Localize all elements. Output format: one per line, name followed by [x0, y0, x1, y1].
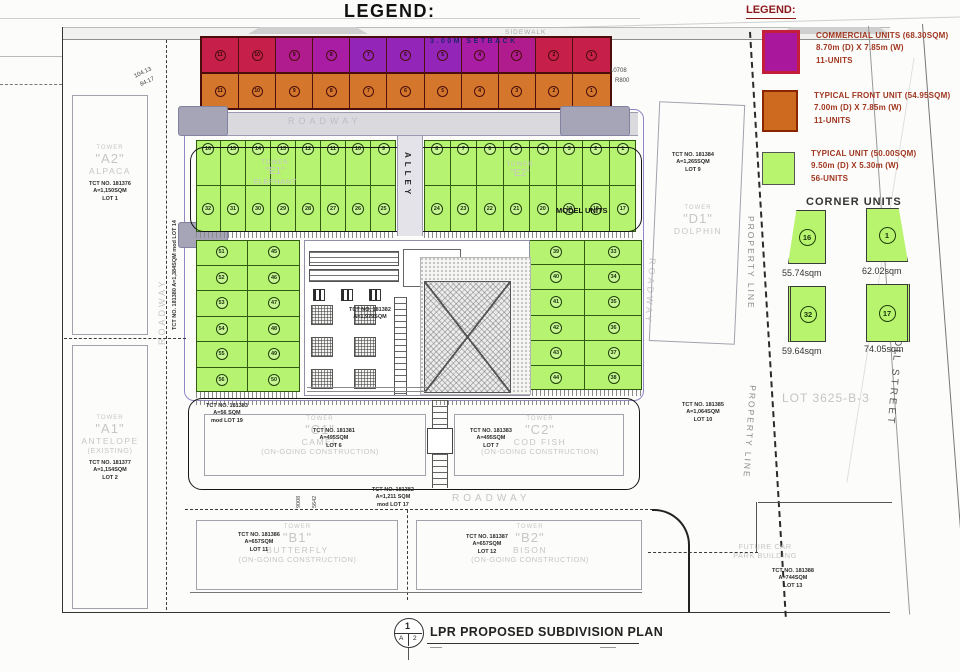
- b-block-bottom-line: [190, 592, 642, 593]
- strip-west-outer-col: 515253545556: [196, 240, 248, 392]
- unit-number: 2: [548, 86, 559, 97]
- tct-lot12: TCT NO. 181387 A=657SQM LOT 12: [466, 534, 508, 556]
- legend-text: TYPICAL FRONT UNIT (54.95SQM) 7.00m (D) …: [814, 90, 950, 127]
- central-walkway: [394, 297, 407, 395]
- tower-e1-label: TOWER "E1" ELEPHANT: [240, 160, 310, 186]
- commercial-unit-cell: 9: [276, 38, 313, 72]
- unit-number: 36: [608, 322, 620, 334]
- tower-name: ANTELOPE: [72, 436, 148, 446]
- tower-name: BUTTERFLY: [210, 545, 385, 555]
- tower-code: "A1": [72, 421, 148, 436]
- cabana: [369, 289, 381, 301]
- front-unit-cell: 4: [462, 74, 499, 108]
- tct-lot10: TCT NO. 181385 A=1,064SQM LOT 10: [682, 402, 724, 424]
- front-unit-cell: 3: [499, 74, 536, 108]
- unit-number: 41: [550, 296, 562, 308]
- carpark-line: PARK BUILDING: [720, 551, 810, 560]
- unit-number: 54: [216, 323, 228, 335]
- model-units-label: MODEL UNITS: [556, 207, 608, 216]
- tct-line: TCT NO. 181381: [313, 428, 355, 435]
- unit-number: 39: [550, 246, 562, 258]
- unit-number: 3: [511, 50, 522, 61]
- legend-text: COMMERCIAL UNITS (68.30SQM) 8.70m (D) X …: [816, 30, 948, 67]
- commercial-unit-cell: 6: [387, 38, 424, 72]
- legend-line: COMMERCIAL UNITS (68.30SQM): [816, 30, 948, 42]
- tct-line: A=56 SQM: [206, 410, 248, 417]
- carpark-lot-line: [758, 502, 892, 503]
- tct-lot17: TCT NO. 181382 A=1,211 SQM mod LOT 17: [372, 487, 414, 509]
- tct-line: LOT 2: [72, 475, 148, 482]
- tct-line: LOT 11: [238, 547, 280, 554]
- tct-line: TCT NO. 181383: [470, 428, 512, 435]
- sheet-line: [0, 18, 640, 19]
- corner-units-heading: CORNER UNITS: [806, 196, 902, 209]
- tower-d1-label: TOWER "D1" DOLPHIN: [658, 205, 738, 236]
- typical-unit-cell: 41: [528, 290, 584, 315]
- tct-line: TCT NO. 181382: [372, 487, 414, 494]
- sidewalk-hatch: [528, 390, 642, 396]
- bubble-tail: [408, 648, 409, 660]
- tct-lot11: TCT NO. 181386 A=657SQM LOT 11: [238, 532, 280, 554]
- tct-line: TCT NO. 181382: [349, 307, 391, 314]
- legend-line: TYPICAL FRONT UNIT (54.95SQM): [814, 90, 950, 102]
- unit-number: 45: [268, 246, 280, 258]
- tct-line: A=657SQM: [238, 539, 280, 546]
- sidewalk-hatch: [196, 400, 632, 405]
- tct-line: A=1,154SQM: [72, 467, 148, 474]
- unit-number: 7: [363, 86, 374, 97]
- carpark-line: FUTURE CAR: [720, 542, 810, 551]
- plan-title: LPR PROPOSED SUBDIVISION PLAN: [430, 625, 663, 639]
- typical-unit-cell: 51: [196, 240, 247, 266]
- legend-swatch: [762, 90, 798, 132]
- commercial-unit-cell: 10: [239, 38, 276, 72]
- tct-lot6: TCT NO. 181381 A=495SQM LOT 6: [313, 428, 355, 450]
- unit-number: 11: [215, 50, 226, 61]
- unit-number: 9: [289, 86, 300, 97]
- b-block-top-line: [185, 509, 653, 510]
- strip-west-inner-col: 454647484950: [248, 240, 300, 392]
- road-centerline-west: [166, 40, 167, 610]
- front-unit-cell: 1: [573, 74, 610, 108]
- margin-line: [0, 56, 62, 57]
- commercial-unit-cell: 2: [536, 38, 573, 72]
- lot3625-label: LOT 3625-B-3: [782, 392, 870, 406]
- lap-pool: [309, 269, 399, 282]
- unit-number: 37: [608, 347, 620, 359]
- corner-unit-17-area: 74.05sqm: [864, 344, 904, 354]
- tct-line: TCT NO. 181386: [238, 532, 280, 539]
- corner-unit-32-area: 59.64sqm: [782, 346, 822, 356]
- corner-unit-32: 32: [788, 286, 826, 342]
- unit-number: 10: [252, 50, 263, 61]
- typical-unit-cell: 50: [248, 368, 300, 393]
- typical-unit-cell: 54: [196, 317, 247, 343]
- front-unit-cell: 5: [425, 74, 462, 108]
- alley-label: ALLEY: [403, 152, 412, 228]
- tower-code: "E2": [485, 168, 555, 179]
- dim-10708: 10708: [610, 68, 627, 75]
- unit-number: 10: [252, 86, 263, 97]
- tct-lot14-label: TCT NO. 181380 A=1,384SQM mod LOT 14: [172, 220, 178, 330]
- front-unit-row: 11 10 9 8 7 6 5 4 3 2 1: [200, 74, 612, 110]
- unit-number: 8: [326, 50, 337, 61]
- cabana: [313, 289, 325, 301]
- commercial-row: 11 10 9 8 7 6 5 4 3 2 1: [200, 36, 612, 74]
- bubble-divider-v: [408, 633, 409, 646]
- strip-east-outer-col: 333435363738: [585, 240, 642, 390]
- subdivision-plan-sheet: LEGEND: SIDEWALK 11 10 9 8 7 6 5 4 3 2: [0, 0, 960, 672]
- tct-line: A=657SQM: [466, 541, 508, 548]
- typical-unit-cell: 35: [585, 290, 642, 315]
- tct-line: LOT 1: [72, 196, 148, 203]
- corner-unit-1: 1: [866, 208, 908, 262]
- typical-unit-cell: 47: [248, 291, 300, 317]
- tree-planter: [311, 369, 333, 389]
- unit-number: 38: [608, 372, 620, 384]
- unit-number: 53: [216, 297, 228, 309]
- unit-number: 7: [363, 50, 374, 61]
- tct-line: A=1,150SQM: [72, 188, 148, 195]
- clubhouse-roof: [424, 281, 511, 393]
- traffic-island: [178, 106, 228, 136]
- dim-84: 84.17: [139, 76, 156, 89]
- unit-number: 55: [216, 348, 228, 360]
- tower-a2-building: [72, 95, 148, 335]
- unit-number: 4: [474, 50, 485, 61]
- unit-number: 43: [550, 347, 562, 359]
- tower-code: "E1": [240, 166, 310, 177]
- tct-lot13: TCT NO. 181388 A=744SQM LOT 13: [772, 568, 814, 590]
- unit-number: 6: [400, 86, 411, 97]
- tct-line: A=1,265SQM: [672, 159, 714, 166]
- unit-number: 1: [586, 50, 597, 61]
- typical-unit-cell: 39: [528, 240, 584, 265]
- tct-line: LOT 12: [466, 549, 508, 556]
- front-unit-cell: 8: [313, 74, 350, 108]
- legend-swatch: [762, 30, 800, 74]
- tree-planter: [354, 369, 376, 389]
- amenity-tct-text: TCT NO. 181382 A=1,979SQM: [349, 307, 391, 322]
- legend-heading: LEGEND:: [746, 4, 796, 19]
- scale-tick: [600, 647, 616, 648]
- front-unit-cell: 9: [276, 74, 313, 108]
- tct-line: mod LOT 19: [206, 418, 248, 425]
- tower-status: (ON-GOING CONSTRUCTION): [210, 555, 385, 564]
- commercial-unit-cell: 11: [202, 38, 239, 72]
- sidewalk-hatch: [196, 232, 396, 238]
- unit-number: 51: [216, 246, 228, 258]
- tower-status: (EXISTING): [72, 446, 148, 455]
- dim-9008: 9008: [296, 496, 302, 508]
- unit-number: 42: [550, 322, 562, 334]
- typical-unit-cell: 38: [585, 366, 642, 390]
- typical-unit-cell: 55: [196, 342, 247, 368]
- unit-number: 3: [511, 86, 522, 97]
- tct-line: A=1,064SQM: [682, 409, 724, 416]
- setback-label: 3.00M SETBACK: [430, 38, 518, 46]
- tower-code: "D1": [658, 211, 738, 226]
- property-line-label-legend: PROPERTY LINE: [745, 216, 755, 310]
- tct-line: LOT 9: [672, 167, 714, 174]
- tct-line: TCT NO. 181387: [466, 534, 508, 541]
- typical-unit-cell: 52: [196, 266, 247, 292]
- tct-line: LOT 6: [313, 443, 355, 450]
- legend-line: 56-UNITS: [811, 173, 916, 185]
- legend-text: TYPICAL UNIT (50.00SQM) 9.50m (D) X 5.30…: [811, 148, 916, 185]
- legend-line: TYPICAL UNIT (50.00SQM): [811, 148, 916, 160]
- unit-number: 2: [548, 50, 559, 61]
- unit-number: 35: [608, 296, 620, 308]
- tree-planter: [311, 305, 333, 325]
- typical-unit-cell: 40: [528, 265, 584, 290]
- legend-line: 8.70m (D) X 7.85m (W): [816, 42, 948, 54]
- unit-number: 16: [799, 229, 816, 246]
- roadway-label-mid: ROADWAY: [452, 493, 531, 505]
- unit-number: 1: [586, 86, 597, 97]
- tower-a2-label: TOWER "A2" ALPACA TCT NO. 181376 A=1,150…: [72, 145, 148, 203]
- b-block-divider: [407, 510, 408, 600]
- unit-number: 4: [474, 86, 485, 97]
- typical-unit-cell: 48: [248, 317, 300, 343]
- tct-lot19: TCT NO. 181383 A=56 SQM mod LOT 19: [206, 403, 248, 425]
- tower-name: ELEPHANT: [240, 177, 310, 186]
- tct-line: TCT NO. 181377: [72, 460, 148, 467]
- tower-code: "B1": [210, 530, 385, 545]
- unit-number: 17: [879, 305, 896, 322]
- unit-number: 48: [268, 323, 280, 335]
- tower-code: "A2": [72, 151, 148, 166]
- traffic-island: [560, 106, 630, 136]
- corner-unit-16: 16: [788, 210, 826, 264]
- commercial-unit-cell: 8: [313, 38, 350, 72]
- tct-line: TCT NO. 181383: [206, 403, 248, 410]
- tower-name: ALPACA: [72, 166, 148, 176]
- unit-number: 52: [216, 272, 228, 284]
- site-boundary-west: [62, 27, 63, 613]
- cabana: [341, 289, 353, 301]
- commercial-unit-cell: 1: [573, 38, 610, 72]
- legend-swatch: [762, 152, 795, 185]
- road-edge-east: [688, 546, 690, 612]
- dim-5642: 5642: [312, 496, 318, 508]
- tower-status: (ON-GOING CONSTRUCTION): [440, 555, 620, 564]
- unit-number: 46: [268, 272, 280, 284]
- legend-items: COMMERCIAL UNITS (68.30SQM) 8.70m (D) X …: [762, 30, 958, 201]
- legend-item: COMMERCIAL UNITS (68.30SQM) 8.70m (D) X …: [762, 30, 958, 74]
- legend-item: TYPICAL UNIT (50.00SQM) 9.50m (D) X 5.30…: [762, 148, 958, 185]
- sheet-number-bottom: 2: [413, 635, 417, 642]
- unit-number: 33: [608, 246, 620, 258]
- front-unit-cell: 6: [387, 74, 424, 108]
- unit-number: 56: [216, 374, 228, 386]
- lap-pool: [309, 251, 399, 266]
- front-unit-cell: 2: [536, 74, 573, 108]
- tct-line: A=744SQM: [772, 575, 814, 582]
- unit-number: 11: [215, 86, 226, 97]
- strip-east-inner-col: 394041424344: [528, 240, 585, 390]
- tct-line: A=495SQM: [313, 435, 355, 442]
- typical-unit-cell: 56: [196, 368, 247, 393]
- front-unit-cell: 7: [350, 74, 387, 108]
- unit-number: 9: [289, 50, 300, 61]
- typical-unit-cell: 42: [528, 316, 584, 341]
- typical-unit-cell: 53: [196, 291, 247, 317]
- typical-unit-cell: 36: [585, 316, 642, 341]
- tct-line: LOT 7: [470, 443, 512, 450]
- typical-unit-cell: 37: [585, 341, 642, 366]
- parking-hatch: [307, 387, 427, 395]
- typical-unit-cell: 43: [528, 341, 584, 366]
- connector-core: [427, 428, 453, 454]
- sidewalk-hatch: [424, 232, 636, 238]
- unit-number: 50: [268, 374, 280, 386]
- corner-unit-1-area: 62.02sqm: [862, 266, 902, 276]
- carpark-label: FUTURE CAR PARK BUILDING: [720, 542, 810, 560]
- unit-number: 8: [326, 86, 337, 97]
- tct-line: A=1,979SQM: [349, 314, 391, 321]
- typical-unit-cell: 46: [248, 266, 300, 292]
- property-line-label-site: PROPERTY LINE: [741, 385, 757, 479]
- unit-number: 47: [268, 297, 280, 309]
- tct-lot1: TCT NO. 181376 A=1,150SQM LOT 1: [72, 181, 148, 203]
- roadway-label-top: ROADWAY: [288, 116, 362, 126]
- plan-title-underline: [427, 643, 639, 644]
- tree-planter: [311, 337, 333, 357]
- tower-a1-label: TOWER "A1" ANTELOPE (EXISTING) TCT NO. 1…: [72, 415, 148, 482]
- tct-line: A=495SQM: [470, 435, 512, 442]
- tct-line: LOT 13: [772, 583, 814, 590]
- main-title: LEGEND:: [344, 1, 436, 22]
- front-unit-cell: 11: [202, 74, 239, 108]
- unit-number: 1: [879, 227, 896, 244]
- legend-item: TYPICAL FRONT UNIT (54.95SQM) 7.00m (D) …: [762, 90, 958, 132]
- legend-line: 11-UNITS: [814, 115, 950, 127]
- typical-unit-cell: 44: [528, 366, 584, 390]
- tct-line: TCT NO. 181376: [72, 181, 148, 188]
- commercial-unit-cell: 7: [350, 38, 387, 72]
- tower-b1-label: TOWER "B1" BUTTERFLY (ON-GOING CONSTRUCT…: [210, 524, 385, 564]
- tower-e2-label: TOWER "E2": [485, 162, 555, 179]
- typical-unit-cell: 34: [585, 265, 642, 290]
- tct-line: A=1,211 SQM: [372, 494, 414, 501]
- legend-line: 11-UNITS: [816, 55, 948, 67]
- tree-planter: [354, 337, 376, 357]
- sidewalk-wedge: [248, 27, 368, 34]
- unit-number: 40: [550, 271, 562, 283]
- scale-tick: [430, 647, 442, 648]
- tct-lot9: TCT NO. 181384 A=1,265SQM LOT 9: [672, 152, 714, 174]
- typical-unit-cell: 49: [248, 342, 300, 368]
- typical-unit-cell: 33: [585, 240, 642, 265]
- road-corner-curve: [652, 509, 690, 547]
- site-boundary-south: [62, 612, 890, 613]
- legend-line: 7.00m (D) X 7.85m (W): [814, 102, 950, 114]
- unit-number: 34: [608, 271, 620, 283]
- tct-line: TCT NO. 181388: [772, 568, 814, 575]
- unit-number: 44: [550, 372, 562, 384]
- unit-number: 32: [800, 306, 817, 323]
- tct-line: TCT NO. 181385: [682, 402, 724, 409]
- tct-line: LOT 10: [682, 417, 724, 424]
- unit-number: 6: [400, 50, 411, 61]
- corner-unit-17: 17: [866, 284, 910, 342]
- typical-unit-cell: 45: [248, 240, 300, 266]
- margin-dash: [0, 84, 62, 85]
- unit-number: 49: [268, 348, 280, 360]
- amenity-area: TCT NO. 181382 A=1,979SQM: [304, 240, 530, 396]
- tct-line: TCT NO. 181384: [672, 152, 714, 159]
- tct-lot2: TCT NO. 181377 A=1,154SQM LOT 2: [72, 460, 148, 482]
- front-unit-cell: 10: [239, 74, 276, 108]
- tower-name: DOLPHIN: [658, 226, 738, 236]
- legend-line: 9.50m (D) X 5.30m (W): [811, 160, 916, 172]
- a-towers-divider: [64, 338, 186, 339]
- sheet-reference-bubble: 1 A 2: [394, 618, 424, 648]
- unit-number: 5: [437, 50, 448, 61]
- sheet-number-top: 1: [405, 621, 410, 631]
- corner-unit-16-area: 55.74sqm: [782, 268, 822, 278]
- tct-lot7: TCT NO. 181383 A=495SQM LOT 7: [470, 428, 512, 450]
- dim-r800: R800: [615, 78, 629, 85]
- unit-number: 5: [437, 86, 448, 97]
- sheet-letter: A: [399, 635, 403, 642]
